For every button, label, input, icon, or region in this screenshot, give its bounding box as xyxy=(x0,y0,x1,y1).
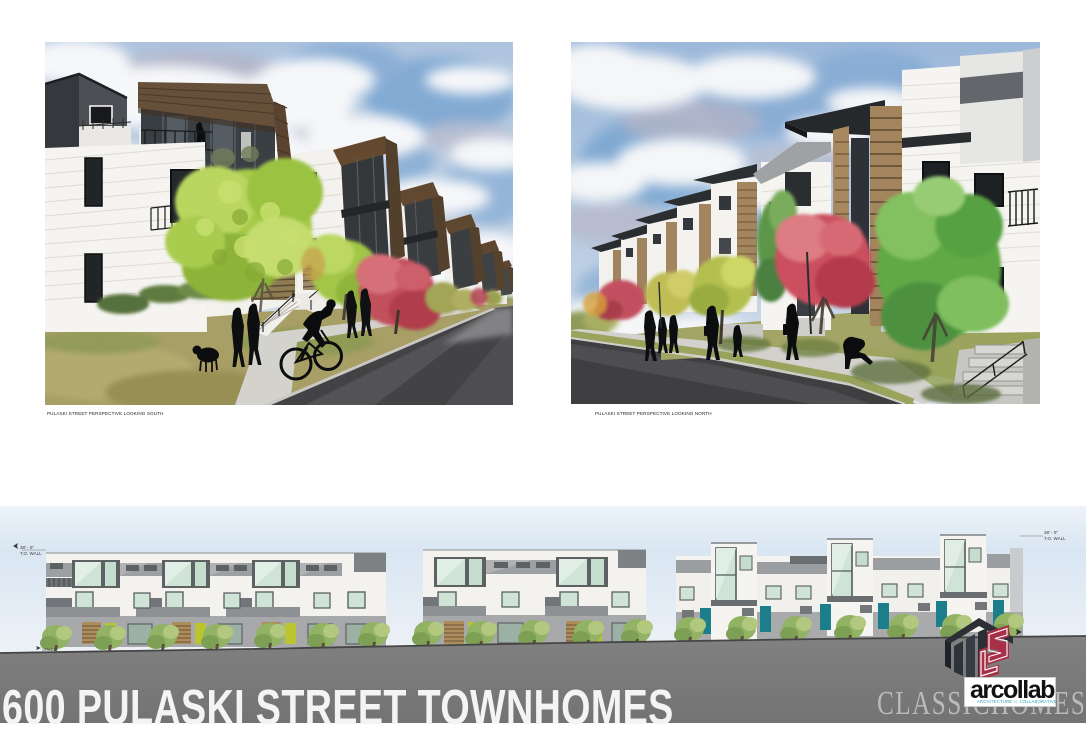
svg-text:GRADE: GRADE xyxy=(42,647,57,652)
svg-text:38' - 0": 38' - 0" xyxy=(1044,530,1058,535)
svg-text:T.O. WALL: T.O. WALL xyxy=(20,551,42,556)
svg-text:T.O. WALL: T.O. WALL xyxy=(1044,536,1066,541)
svg-text:38' - 0": 38' - 0" xyxy=(20,545,34,550)
